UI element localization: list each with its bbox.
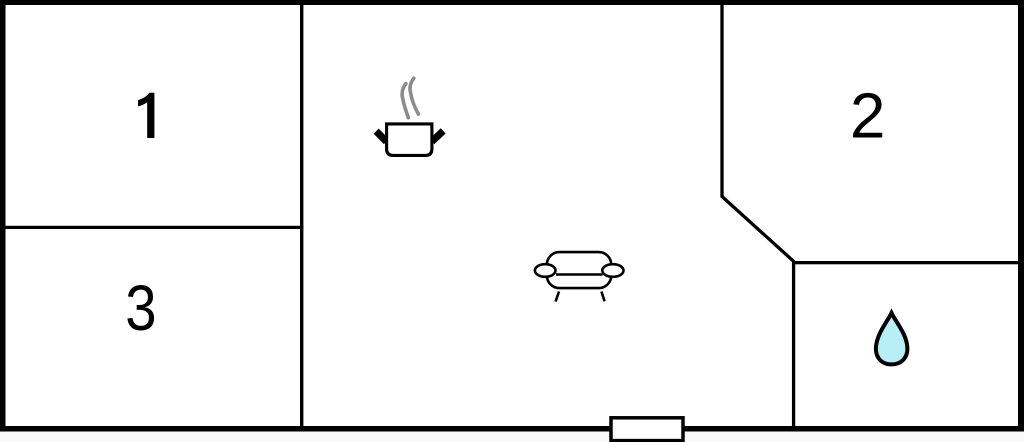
svg-text:2: 2: [850, 80, 886, 152]
svg-text:3: 3: [125, 272, 156, 344]
